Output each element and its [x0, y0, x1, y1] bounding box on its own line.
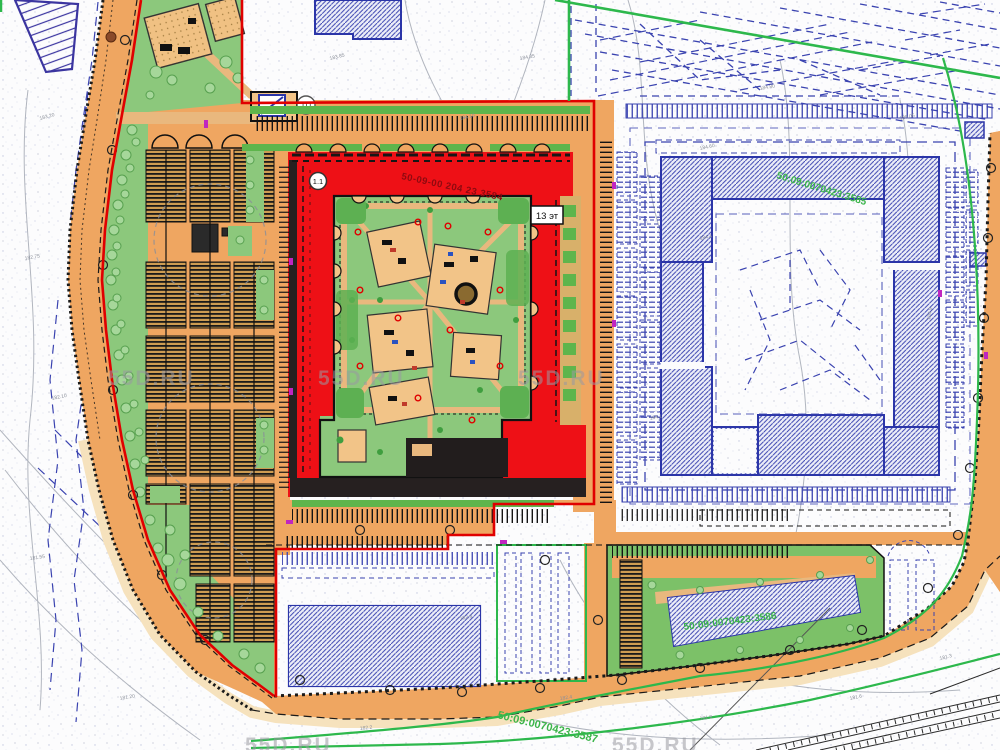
svg-text:55D.RU: 55D.RU	[108, 367, 195, 390]
svg-text:55D.RU: 55D.RU	[318, 367, 405, 390]
svg-text:1.1: 1.1	[313, 177, 323, 186]
svg-text:13 эт: 13 эт	[536, 211, 559, 222]
svg-text:55D.RU: 55D.RU	[245, 734, 332, 750]
svg-text:55D.RU: 55D.RU	[518, 367, 605, 390]
svg-text:55D.RU: 55D.RU	[612, 734, 699, 750]
